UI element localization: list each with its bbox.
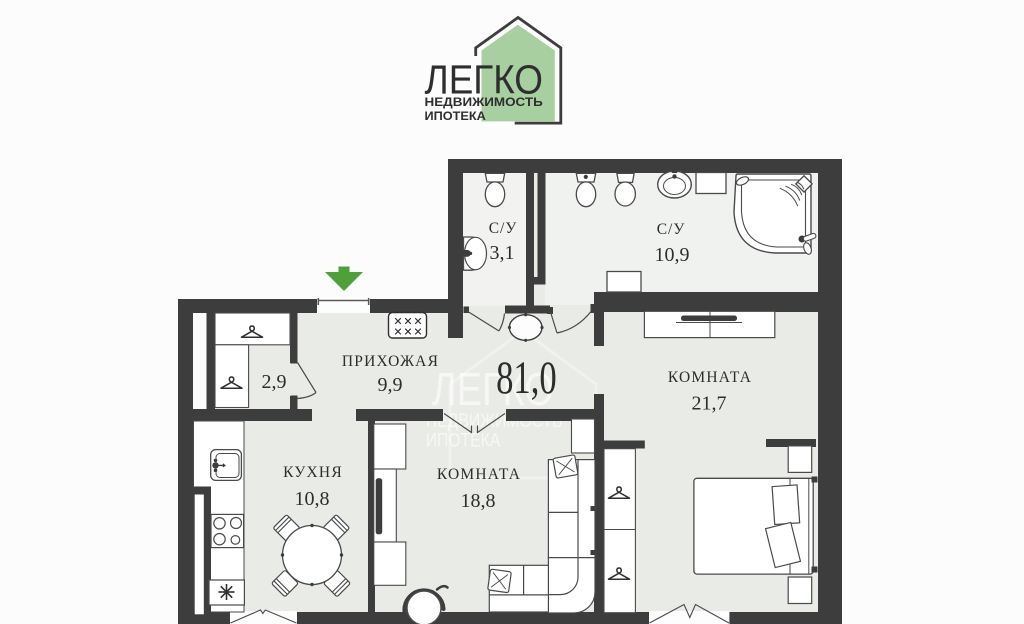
- svg-text:ПРИХОЖАЯ: ПРИХОЖАЯ: [342, 353, 439, 370]
- svg-text:10,8: 10,8: [295, 488, 330, 510]
- svg-text:КОМНАТА: КОМНАТА: [668, 369, 752, 386]
- svg-text:С/У: С/У: [657, 221, 686, 238]
- svg-text:18,8: 18,8: [461, 490, 496, 512]
- svg-text:9,9: 9,9: [378, 374, 403, 396]
- svg-text:81,0: 81,0: [496, 352, 557, 404]
- svg-text:ИПОТЕКА: ИПОТЕКА: [426, 431, 501, 452]
- svg-text:КОМНАТА: КОМНАТА: [437, 466, 521, 483]
- svg-text:НЕДВИЖИМОСТЬ: НЕДВИЖИМОСТЬ: [425, 95, 544, 109]
- svg-text:10,9: 10,9: [655, 244, 690, 266]
- svg-text:КУХНЯ: КУХНЯ: [283, 464, 343, 481]
- svg-text:2,9: 2,9: [262, 371, 287, 393]
- svg-text:С/У: С/У: [489, 220, 518, 237]
- svg-text:ИПОТЕКА: ИПОТЕКА: [425, 109, 487, 123]
- svg-text:3,1: 3,1: [490, 242, 515, 264]
- svg-text:21,7: 21,7: [692, 393, 727, 415]
